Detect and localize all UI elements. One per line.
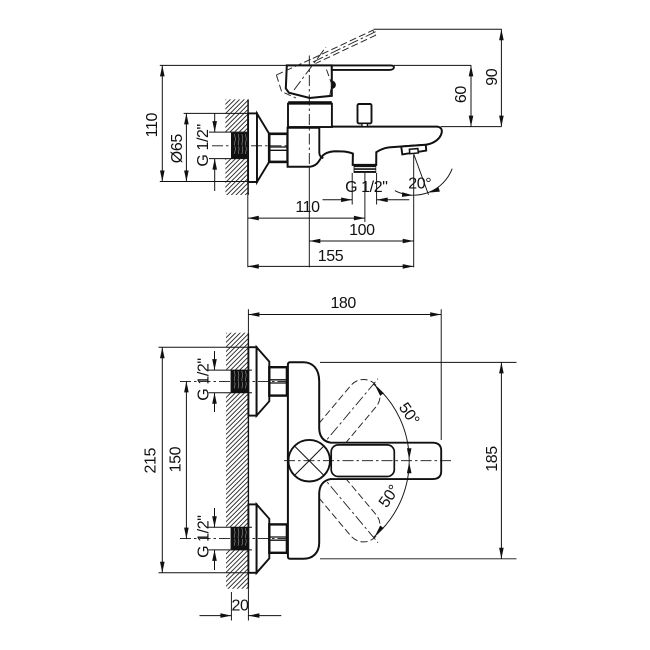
svg-text:155: 155: [318, 248, 344, 265]
svg-text:90: 90: [484, 68, 501, 85]
svg-text:G 1/2": G 1/2": [195, 515, 212, 557]
svg-text:150: 150: [167, 446, 184, 472]
svg-text:100: 100: [349, 222, 375, 239]
svg-text:20°: 20°: [408, 176, 431, 193]
svg-text:20: 20: [232, 598, 249, 615]
svg-text:G 1/2": G 1/2": [345, 179, 387, 196]
svg-text:110: 110: [295, 199, 320, 216]
svg-text:185: 185: [484, 446, 501, 472]
svg-text:G 1/2": G 1/2": [195, 124, 212, 166]
svg-text:Ø65: Ø65: [169, 134, 186, 164]
svg-text:G 1/2": G 1/2": [195, 358, 212, 400]
svg-text:110: 110: [144, 113, 161, 138]
svg-text:180: 180: [330, 295, 356, 312]
svg-text:215: 215: [142, 448, 159, 474]
svg-text:60: 60: [453, 86, 470, 103]
